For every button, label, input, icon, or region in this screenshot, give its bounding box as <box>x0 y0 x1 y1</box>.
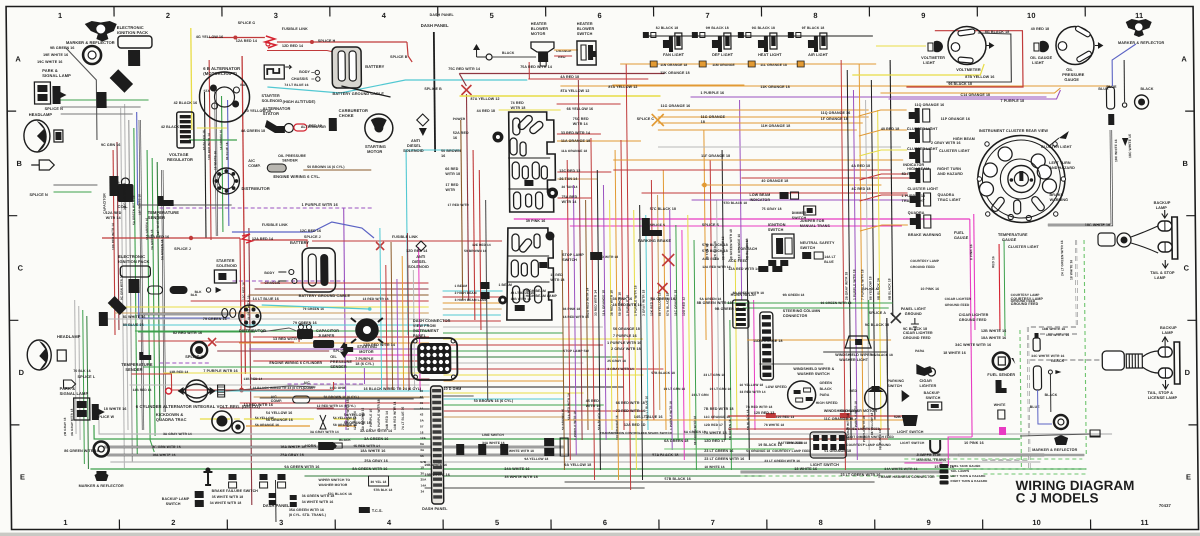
svg-text:56 ORANGE 16: 56 ORANGE 16 <box>255 423 279 427</box>
svg-text:BACKUP: BACKUP <box>1160 326 1177 330</box>
svg-text:66 RED W/TR 18: 66 RED W/TR 18 <box>616 401 645 405</box>
svg-text:BATTERY: BATTERY <box>290 240 309 245</box>
svg-text:7 PURPLE W/TR 18: 7 PURPLE W/TR 18 <box>860 269 864 300</box>
svg-text:BLACK: BLACK <box>1051 359 1064 363</box>
svg-text:36 PINK 16: 36 PINK 16 <box>613 297 633 301</box>
svg-text:33 RED W/TR 14: 33 RED W/TR 14 <box>740 390 766 394</box>
svg-text:CLUSTER LIGHT: CLUSTER LIGHT <box>1041 145 1072 149</box>
svg-text:57B BLK 18: 57B BLK 18 <box>374 488 393 492</box>
svg-text:11G ORANGE 16: 11G ORANGE 16 <box>661 104 691 108</box>
svg-text:66 YELLOW 16: 66 YELLOW 16 <box>567 107 594 111</box>
svg-text:12 RED W/TR 14 (6 CYL): 12 RED W/TR 14 (6 CYL) <box>317 404 356 408</box>
svg-text:50 BROWN 16: 50 BROWN 16 <box>464 249 487 253</box>
svg-text:12A RED 14: 12A RED 14 <box>236 39 257 43</box>
svg-text:10: 10 <box>1027 11 1036 20</box>
svg-text:8J BLACK 18: 8J BLACK 18 <box>656 26 678 30</box>
svg-text:GROUND FEED: GROUND FEED <box>959 318 987 322</box>
svg-text:50 BROWN 16 (6 CYL): 50 BROWN 16 (6 CYL) <box>324 395 359 399</box>
svg-text:2 GRAY W/TR 16: 2 GRAY W/TR 16 <box>931 141 961 145</box>
svg-text:WHITE: WHITE <box>994 403 1006 407</box>
svg-text:GROUND FEED: GROUND FEED <box>945 303 970 307</box>
svg-text:3: 3 <box>279 518 283 527</box>
svg-text:DEF LIGHT: DEF LIGHT <box>712 53 734 57</box>
svg-text:MARKER & REFLECTOR: MARKER & REFLECTOR <box>79 484 124 488</box>
svg-text:7B RED W/TR 18: 7B RED W/TR 18 <box>746 405 773 409</box>
svg-text:CHASSIS: CHASSIS <box>264 281 280 285</box>
svg-text:23 LT GRN 18: 23 LT GRN 18 <box>703 373 725 377</box>
svg-text:19 WHITE 16: 19 WHITE 16 <box>213 151 217 170</box>
svg-text:19 BLACK 18: 19 BLACK 18 <box>758 443 782 447</box>
svg-text:8TA YELLOW 12: 8TA YELLOW 12 <box>560 89 589 93</box>
svg-text:GROUND FEED: GROUND FEED <box>903 336 931 340</box>
svg-text:23 LT GREEN W/TR 16: 23 LT GREEN W/TR 16 <box>764 459 800 463</box>
svg-text:5A GREEN W/TR 16: 5A GREEN W/TR 16 <box>132 195 136 225</box>
svg-text:CAPACITOR: CAPACITOR <box>103 193 107 214</box>
svg-text:2 HIGH BEAM: 2 HIGH BEAM <box>455 291 477 295</box>
svg-text:E: E <box>1186 473 1191 482</box>
svg-text:9G BLACK 18: 9G BLACK 18 <box>752 26 775 30</box>
svg-text:58 ORANGE 16: 58 ORANGE 16 <box>333 423 357 427</box>
svg-text:GAUGE: GAUGE <box>1064 77 1079 82</box>
svg-text:D: D <box>1185 368 1191 377</box>
svg-text:8B GREEN W/TR 18: 8B GREEN W/TR 18 <box>697 301 732 305</box>
svg-text:DASH CONNECTOR: DASH CONNECTOR <box>413 319 451 323</box>
svg-text:16 BLACK W/RED TR 24 (6 CYL): 16 BLACK W/RED TR 24 (6 CYL) <box>364 387 422 391</box>
svg-text:24 LT GREEN W/TR 16: 24 LT GREEN W/TR 16 <box>1060 240 1064 276</box>
svg-text:DASH PANEL: DASH PANEL <box>422 507 448 511</box>
svg-text:6A GREEN 18: 6A GREEN 18 <box>684 430 706 434</box>
svg-text:50 BROWN 16 (6 CYL): 50 BROWN 16 (6 CYL) <box>474 399 514 403</box>
svg-text:DASH PANEL: DASH PANEL <box>421 23 449 28</box>
svg-text:18 WHITE 16: 18 WHITE 16 <box>1069 260 1073 280</box>
svg-text:25A GRAY 16: 25A GRAY 16 <box>364 459 388 463</box>
svg-text:BLACK: BLACK <box>820 387 833 391</box>
svg-text:SPLICE N: SPLICE N <box>30 193 49 197</box>
svg-text:12C RED 16: 12C RED 16 <box>241 282 245 300</box>
svg-text:BLK: BLK <box>191 293 198 297</box>
svg-text:5: 5 <box>490 11 494 20</box>
svg-text:LAMP: LAMP <box>1154 276 1166 280</box>
svg-text:9C GRN W/TR 16: 9C GRN W/TR 16 <box>119 274 123 300</box>
svg-text:SPLICE J: SPLICE J <box>304 235 321 239</box>
svg-text:8G BLACK 18: 8G BLACK 18 <box>985 30 1010 34</box>
svg-text:SWITCH: SWITCH <box>926 396 941 400</box>
svg-text:HEADLAMP: HEADLAMP <box>29 112 53 117</box>
svg-text:81 WHITE 16: 81 WHITE 16 <box>123 315 146 319</box>
svg-text:1 PURPLE 16: 1 PURPLE 16 <box>700 91 724 95</box>
svg-text:57A BLACK 16: 57A BLACK 16 <box>597 408 601 430</box>
svg-text:19B WHITE 16: 19B WHITE 16 <box>424 473 449 477</box>
svg-text:7 PURPLE W/TR 16: 7 PURPLE W/TR 16 <box>203 369 237 373</box>
svg-text:75 GRAY 18: 75 GRAY 18 <box>762 207 782 211</box>
svg-text:LEFT TURN & HAZARD: LEFT TURN & HAZARD <box>950 474 986 478</box>
svg-text:54 YELLOW 16: 54 YELLOW 16 <box>266 411 293 415</box>
svg-text:POWER: POWER <box>453 117 466 121</box>
svg-text:30 YEL 18: 30 YEL 18 <box>371 480 387 484</box>
svg-text:C: C <box>18 264 24 273</box>
svg-text:13B RED W/TR 14: 13B RED W/TR 14 <box>111 223 115 250</box>
svg-text:15 RED: 15 RED <box>550 273 563 277</box>
svg-text:SWITCH: SWITCH <box>800 246 815 250</box>
svg-text:SWITCH: SWITCH <box>768 228 784 232</box>
svg-text:1F ORANGE 18: 1F ORANGE 18 <box>821 117 848 121</box>
svg-text:13B RED 14: 13B RED 14 <box>169 370 188 374</box>
svg-text:36 PINK 18: 36 PINK 18 <box>563 307 581 311</box>
svg-text:ENGINE WIRING 6 CYL.: ENGINE WIRING 6 CYL. <box>273 174 320 179</box>
svg-text:MOTOR: MOTOR <box>367 149 382 154</box>
svg-text:34C WHITE W/TR 16: 34C WHITE W/TR 16 <box>1031 354 1064 358</box>
svg-text:87B YELLOW 16: 87B YELLOW 16 <box>965 75 994 79</box>
svg-text:MARKER & REFLECTOR: MARKER & REFLECTOR <box>66 40 115 45</box>
svg-text:FRAME HARNESS CONNECTOR: FRAME HARNESS CONNECTOR <box>878 475 935 479</box>
svg-text:43 RED W/TR 16: 43 RED W/TR 16 <box>247 295 251 320</box>
svg-text:50 BROWN 16: 50 BROWN 16 <box>561 409 565 430</box>
svg-text:13 RED W/TR 16: 13 RED W/TR 16 <box>273 337 302 341</box>
svg-text:AIR LIGHT: AIR LIGHT <box>808 53 829 57</box>
svg-text:45 RED: 45 RED <box>586 399 600 403</box>
svg-text:8B GREEN W/TR 18: 8B GREEN W/TR 18 <box>733 291 765 295</box>
svg-text:11C ORANGE 18: 11C ORANGE 18 <box>674 290 678 316</box>
svg-text:57C BLACK 18: 57C BLACK 18 <box>650 207 676 211</box>
svg-text:12A RED: 12A RED <box>106 211 122 215</box>
svg-text:42 BLACK 16: 42 BLACK 16 <box>161 125 185 129</box>
svg-text:BRAKE WARNING: BRAKE WARNING <box>908 233 941 237</box>
svg-text:51 ORANGE 18: 51 ORANGE 18 <box>824 449 851 453</box>
svg-text:3 GRAY W/TR 14: 3 GRAY W/TR 14 <box>607 367 634 371</box>
svg-text:18 (6 CYL): 18 (6 CYL) <box>355 362 374 366</box>
svg-text:HEATER: HEATER <box>531 22 547 26</box>
svg-text:3 HIGH BEAM LAMP: 3 HIGH BEAM LAMP <box>455 298 488 302</box>
svg-text:48 LT BLUE 16: 48 LT BLUE 16 <box>511 291 535 295</box>
svg-text:1: 1 <box>63 518 67 527</box>
svg-text:TAIL, STOP &: TAIL, STOP & <box>1148 391 1174 395</box>
svg-text:BLUE: BLUE <box>824 260 834 264</box>
svg-text:57: 57 <box>420 424 424 428</box>
svg-text:7: 7 <box>705 11 709 20</box>
svg-text:BLACK: BLACK <box>339 438 351 442</box>
svg-text:78 WHITE 18: 78 WHITE 18 <box>704 431 727 435</box>
svg-text:A/C: A/C <box>248 159 255 163</box>
svg-text:9C BLACK 18: 9C BLACK 18 <box>865 323 889 327</box>
svg-text:DASH PANEL: DASH PANEL <box>263 503 290 508</box>
svg-text:3G GRAY W/TR 18: 3G GRAY W/TR 18 <box>70 408 74 436</box>
svg-text:A/C: A/C <box>304 381 311 385</box>
svg-text:36 GREEN W/TR 18: 36 GREEN W/TR 18 <box>302 494 335 498</box>
svg-text:40 RED 18: 40 RED 18 <box>1031 27 1050 31</box>
svg-text:SPLICE C: SPLICE C <box>637 117 655 121</box>
svg-text:3A GREEN 16: 3A GREEN 16 <box>364 437 388 441</box>
svg-text:MOTOR: MOTOR <box>359 350 374 354</box>
svg-text:23 RED W/TR 14: 23 RED W/TR 14 <box>616 409 645 413</box>
svg-text:GROUND FEED: GROUND FEED <box>910 265 935 269</box>
svg-text:SPLICE N: SPLICE N <box>45 107 64 111</box>
svg-text:BLUE: BLUE <box>1030 405 1041 409</box>
svg-text:GAUGE: GAUGE <box>1002 238 1017 242</box>
svg-text:34A WHITE 16: 34A WHITE 16 <box>504 467 529 471</box>
svg-text:15 RED W/TR 18: 15 RED W/TR 18 <box>592 255 618 259</box>
svg-text:80 BLUE 16: 80 BLUE 16 <box>123 323 144 327</box>
svg-text:W/TR 14: W/TR 14 <box>562 200 577 204</box>
svg-text:REGULATOR: REGULATOR <box>167 157 193 162</box>
svg-text:IGNITION PACK: IGNITION PACK <box>117 30 148 35</box>
svg-text:12B WHITE 16: 12B WHITE 16 <box>981 329 1006 333</box>
svg-text:TRAC LIGHT: TRAC LIGHT <box>938 198 962 202</box>
svg-text:OIL: OIL <box>330 355 337 359</box>
svg-text:19P WHITE 18: 19P WHITE 18 <box>156 214 160 235</box>
svg-text:35A GREEN W/TR 16: 35A GREEN W/TR 16 <box>289 508 324 512</box>
svg-text:HEATER: HEATER <box>577 22 593 26</box>
svg-text:ACC FEED: ACC FEED <box>702 257 720 261</box>
svg-text:8 PINK 16: 8 PINK 16 <box>969 244 973 260</box>
svg-text:LIGHTER: LIGHTER <box>920 384 937 388</box>
svg-text:75A RED W/TR 14: 75A RED W/TR 14 <box>520 65 552 69</box>
svg-text:9B GREEN 18: 9B GREEN 18 <box>715 307 740 311</box>
svg-text:12D RED 17: 12D RED 17 <box>704 439 725 443</box>
svg-text:19A WHITE 16: 19A WHITE 16 <box>1046 333 1069 337</box>
svg-text:12A RED W/TR 14: 12A RED W/TR 14 <box>702 265 730 269</box>
svg-text:C14 ORANGE 18: C14 ORANGE 18 <box>960 93 990 97</box>
svg-text:SENDER: SENDER <box>282 159 298 163</box>
svg-text:16 BLACK WIRED TR 24 (6 CYL): 16 BLACK WIRED TR 24 (6 CYL) <box>253 386 305 390</box>
svg-text:HIGH SPEED: HIGH SPEED <box>816 401 838 405</box>
svg-text:COURTESY LAMP FEED: COURTESY LAMP FEED <box>772 449 811 453</box>
svg-text:C J MODELS: C J MODELS <box>1016 491 1099 506</box>
svg-text:14A LT: 14A LT <box>824 255 836 259</box>
svg-text:34A WHITE 16: 34A WHITE 16 <box>482 441 505 445</box>
svg-text:1 PURPLE W/TR 16: 1 PURPLE W/TR 16 <box>607 341 641 345</box>
svg-text:(HIGH ALTITUDE): (HIGH ALTITUDE) <box>283 100 317 104</box>
svg-text:54 YELLOW: 54 YELLOW <box>255 416 274 420</box>
svg-text:14A GREEN 16: 14A GREEN 16 <box>145 218 149 240</box>
svg-text:CONNECTOR: CONNECTOR <box>783 314 808 318</box>
svg-text:19 LT GRN 16: 19 LT GRN 16 <box>664 387 686 391</box>
svg-text:FAN LIGHT: FAN LIGHT <box>663 53 685 57</box>
svg-text:RIGHT TURN & HAZARD: RIGHT TURN & HAZARD <box>951 479 989 483</box>
svg-text:96 GREEN W/TR 18: 96 GREEN W/TR 18 <box>821 301 852 305</box>
svg-text:9B BLACK 3A: 9B BLACK 3A <box>878 428 882 450</box>
svg-text:VOLTMETER: VOLTMETER <box>956 67 981 72</box>
svg-text:11H ORANGE 18: 11H ORANGE 18 <box>761 124 791 128</box>
svg-text:19C WHITE 16: 19C WHITE 16 <box>37 60 62 64</box>
svg-text:W/TR 18: W/TR 18 <box>445 172 460 176</box>
svg-text:STA: STA <box>203 89 210 93</box>
svg-text:17 RED: 17 RED <box>445 183 459 187</box>
svg-text:96 BLACK 18: 96 BLACK 18 <box>948 82 972 86</box>
svg-text:BRAKE FAILURE SWITCH: BRAKE FAILURE SWITCH <box>212 489 259 493</box>
svg-text:COURTESY LAMP GROUND: COURTESY LAMP GROUND <box>846 443 891 447</box>
svg-text:BODY: BODY <box>264 271 275 275</box>
svg-text:16 YELLOW 18: 16 YELLOW 18 <box>740 383 764 387</box>
svg-text:MANUAL TRANS: MANUAL TRANS <box>800 224 831 228</box>
svg-text:2: 2 <box>171 518 175 527</box>
svg-text:DISTRIBUTOR: DISTRIBUTOR <box>241 186 269 191</box>
svg-text:74 LT BLUE 16: 74 LT BLUE 16 <box>284 83 308 87</box>
svg-text:4G YELLOW 16: 4G YELLOW 16 <box>196 35 223 39</box>
svg-text:LEFT TURN: LEFT TURN <box>1049 161 1071 165</box>
svg-text:12A RED 14: 12A RED 14 <box>252 237 273 241</box>
svg-text:28 GRAY W/TR 18: 28 GRAY W/TR 18 <box>846 413 850 440</box>
svg-text:6A GREEN 18: 6A GREEN 18 <box>664 439 688 443</box>
svg-text:11E ORANGE 16: 11E ORANGE 16 <box>615 415 619 440</box>
svg-text:44 RED 18: 44 RED 18 <box>477 109 496 113</box>
svg-text:12E RED 14: 12E RED 14 <box>472 243 491 247</box>
svg-text:B: B <box>16 159 22 168</box>
svg-text:COMP.: COMP. <box>248 164 261 168</box>
svg-text:BATTERY GROUND CABLE: BATTERY GROUND CABLE <box>299 294 351 298</box>
svg-text:10 PINK 16: 10 PINK 16 <box>921 287 940 291</box>
svg-text:66 RED: 66 RED <box>445 167 459 171</box>
svg-text:87A YELLOW 12: 87A YELLOW 12 <box>471 97 500 101</box>
svg-text:12B RED 16: 12B RED 16 <box>133 388 152 392</box>
svg-text:RED 16: RED 16 <box>991 256 995 268</box>
svg-text:TRANSMISSION CONTROLLED SPARK: TRANSMISSION CONTROLLED SPARK SWITCH <box>600 431 672 435</box>
svg-text:57D BLACK 18: 57D BLACK 18 <box>724 201 748 205</box>
svg-text:WASHER LIGHT: WASHER LIGHT <box>839 358 868 362</box>
svg-text:12D RED 14: 12D RED 14 <box>282 44 303 48</box>
svg-text:120 RED 13: 120 RED 13 <box>754 411 775 415</box>
svg-text:FUSIBLE LINK: FUSIBLE LINK <box>282 27 308 31</box>
svg-text:16: 16 <box>453 136 457 140</box>
svg-text:52B RED 16: 52B RED 16 <box>894 415 915 419</box>
svg-text:79 GREEN 16: 79 GREEN 16 <box>303 307 324 311</box>
svg-text:SPLICE B: SPLICE B <box>390 55 408 59</box>
svg-text:9A GREEN W/TR 16: 9A GREEN W/TR 16 <box>284 465 319 469</box>
svg-text:WIPER SWITCH TO: WIPER SWITCH TO <box>319 478 351 482</box>
svg-text:1 BEAM: 1 BEAM <box>454 284 467 288</box>
svg-text:52A RED: 52A RED <box>453 131 469 135</box>
svg-text:INSTRUMENT CLUSTER REAR VIEW: INSTRUMENT CLUSTER REAR VIEW <box>979 129 1049 133</box>
svg-text:MOTOR: MOTOR <box>531 32 546 36</box>
svg-text:19B WHITE 16: 19B WHITE 16 <box>424 463 447 467</box>
svg-text:10: 10 <box>1032 518 1041 527</box>
svg-text:LAMP: LAMP <box>1156 206 1168 210</box>
svg-text:CHASSIS: CHASSIS <box>291 77 308 81</box>
svg-text:11D ORANGE 18: 11D ORANGE 18 <box>753 339 783 343</box>
svg-text:BLACK: BLACK <box>502 51 515 55</box>
svg-text:ANTI: ANTI <box>411 139 420 143</box>
svg-text:16 RED W/TR 18: 16 RED W/TR 18 <box>563 315 589 319</box>
svg-text:39 PINK 16: 39 PINK 16 <box>526 219 546 223</box>
svg-text:SPLICE A: SPLICE A <box>869 311 887 315</box>
svg-text:COURTESY LAMP: COURTESY LAMP <box>1011 293 1041 297</box>
svg-text:8A GREEN W/TR 16: 8A GREEN W/TR 16 <box>352 467 387 471</box>
svg-text:4A RED 18: 4A RED 18 <box>851 164 870 168</box>
svg-text:GREEN: GREEN <box>820 381 833 385</box>
svg-text:13B RED W/TR 14: 13B RED W/TR 14 <box>207 133 211 160</box>
svg-text:57B BLACK 16: 57B BLACK 16 <box>665 477 691 481</box>
svg-text:GROUND FEED: GROUND FEED <box>1011 299 1036 303</box>
svg-text:11K ORANGE 18: 11K ORANGE 18 <box>660 71 690 75</box>
svg-text:70 BLK 16: 70 BLK 16 <box>73 369 90 373</box>
svg-text:1 PURPLE W/TR 16: 1 PURPLE W/TR 16 <box>573 411 577 440</box>
svg-text:SENDER: SENDER <box>330 365 347 369</box>
svg-text:SPLICE B: SPLICE B <box>424 87 442 91</box>
svg-text:1 PURPLE W/TR 16: 1 PURPLE W/TR 16 <box>633 285 637 316</box>
svg-text:51 ORANGE 18: 51 ORANGE 18 <box>746 449 770 453</box>
svg-text:35 WHITE W/TR 18: 35 WHITE W/TR 18 <box>504 475 537 479</box>
svg-text:1 PURPLE W/TR 18: 1 PURPLE W/TR 18 <box>669 401 673 430</box>
svg-text:7B RED W/TR 18: 7B RED W/TR 18 <box>704 407 734 411</box>
svg-text:57B BLACK 18: 57B BLACK 18 <box>651 371 675 375</box>
svg-text:23 LT GRN: 23 LT GRN <box>692 393 710 397</box>
svg-text:MARKER & REFLECTOR: MARKER & REFLECTOR <box>1118 41 1165 45</box>
svg-text:13 RED W/TR 16: 13 RED W/TR 16 <box>244 403 273 407</box>
svg-text:12C RED 12: 12C RED 12 <box>559 169 580 173</box>
svg-text:FUSIBLE LINK: FUSIBLE LINK <box>262 223 288 227</box>
svg-text:40 RED 18: 40 RED 18 <box>881 127 900 131</box>
svg-text:16A WHITE 16: 16A WHITE 16 <box>280 445 305 449</box>
svg-text:18 WHITE 16: 18 WHITE 16 <box>104 407 127 411</box>
svg-text:OIL PRESSURE: OIL PRESSURE <box>278 154 306 158</box>
svg-text:7: 7 <box>711 518 715 527</box>
svg-text:11Q ORANGE 16: 11Q ORANGE 16 <box>915 103 945 107</box>
svg-text:14S LT BLUE 16: 14S LT BLUE 16 <box>645 396 649 420</box>
svg-text:79 GREEN 16: 79 GREEN 16 <box>293 321 317 325</box>
svg-text:11: 11 <box>1140 518 1148 527</box>
svg-text:52A RED W/TR 14: 52A RED W/TR 14 <box>586 288 590 316</box>
svg-text:88 YELLOW 18: 88 YELLOW 18 <box>658 292 662 316</box>
svg-text:14 GREEN 16: 14 GREEN 16 <box>219 130 223 150</box>
svg-text:4B RED 18: 4B RED 18 <box>901 172 920 176</box>
svg-text:33 RED W/TR 14: 33 RED W/TR 14 <box>561 131 590 135</box>
svg-text:BLACK: BLACK <box>1045 393 1058 397</box>
svg-text:12E RED 14: 12E RED 14 <box>353 411 357 430</box>
svg-text:98 GREEN W/TR 18: 98 GREEN W/TR 18 <box>729 229 733 260</box>
svg-text:12G RED 12: 12G RED 12 <box>682 297 686 316</box>
svg-text:LIGHT: LIGHT <box>1032 61 1045 65</box>
svg-text:SOLENOID: SOLENOID <box>216 264 237 268</box>
svg-text:16 RED W/TR 16: 16 RED W/TR 16 <box>613 303 642 307</box>
svg-text:6: 6 <box>597 11 601 20</box>
svg-text:11A ORANGE 18: 11A ORANGE 18 <box>561 139 590 143</box>
svg-text:BLACK: BLACK <box>1140 87 1153 91</box>
svg-text:TAIL LAMPS: TAIL LAMPS <box>950 469 969 473</box>
svg-text:1 PURPLE 18: 1 PURPLE 18 <box>902 194 926 198</box>
svg-text:LIGHT: LIGHT <box>923 61 936 65</box>
svg-text:24B RED 14: 24B RED 14 <box>385 411 389 430</box>
svg-text:CIGAR LIGHTER: CIGAR LIGHTER <box>945 297 972 301</box>
svg-text:12A RED W/TR 14: 12A RED W/TR 14 <box>728 267 759 271</box>
svg-text:54 YELLOW 18: 54 YELLOW 18 <box>333 416 357 420</box>
svg-text:74 LT BLUE 16: 74 LT BLUE 16 <box>401 406 405 430</box>
svg-text:11F ORANGE 18: 11F ORANGE 18 <box>701 154 730 158</box>
svg-text:E: E <box>20 473 25 482</box>
svg-text:PARKING: PARKING <box>887 379 904 383</box>
svg-text:IGNITION: IGNITION <box>768 223 786 227</box>
svg-text:2M GRAY 16: 2M GRAY 16 <box>116 181 120 200</box>
svg-text:12C RED 16: 12C RED 16 <box>300 229 321 233</box>
svg-text:WASHER MOTOR: WASHER MOTOR <box>319 483 348 487</box>
svg-text:70437: 70437 <box>1159 503 1172 508</box>
svg-text:45: 45 <box>420 401 424 405</box>
svg-text:12D RED 14: 12D RED 14 <box>406 249 427 253</box>
svg-text:STEERING COLUMN: STEERING COLUMN <box>783 309 821 313</box>
svg-text:FUEL: FUEL <box>954 231 965 235</box>
svg-text:SOLENOID: SOLENOID <box>262 99 283 103</box>
svg-text:13B W/TR 14: 13B W/TR 14 <box>511 297 532 301</box>
svg-text:VIEW FROM: VIEW FROM <box>413 324 436 328</box>
svg-text:3A GRAY W/TR 14: 3A GRAY W/TR 14 <box>163 432 192 436</box>
svg-text:BATTERY: BATTERY <box>365 64 384 69</box>
svg-text:11M ORANGE: 11M ORANGE <box>712 63 735 67</box>
svg-text:9B GREEN 18: 9B GREEN 18 <box>728 419 732 440</box>
svg-text:7 PURPLE 16: 7 PURPLE 16 <box>613 334 637 338</box>
svg-text:PRESSURE: PRESSURE <box>330 360 352 364</box>
svg-text:11L ORANGE 18: 11L ORANGE 18 <box>760 63 787 67</box>
svg-text:SPLICE S: SPLICE S <box>650 223 665 227</box>
svg-text:9B BLACK 18: 9B BLACK 18 <box>887 278 891 300</box>
svg-text:DIMMER: DIMMER <box>792 211 807 215</box>
